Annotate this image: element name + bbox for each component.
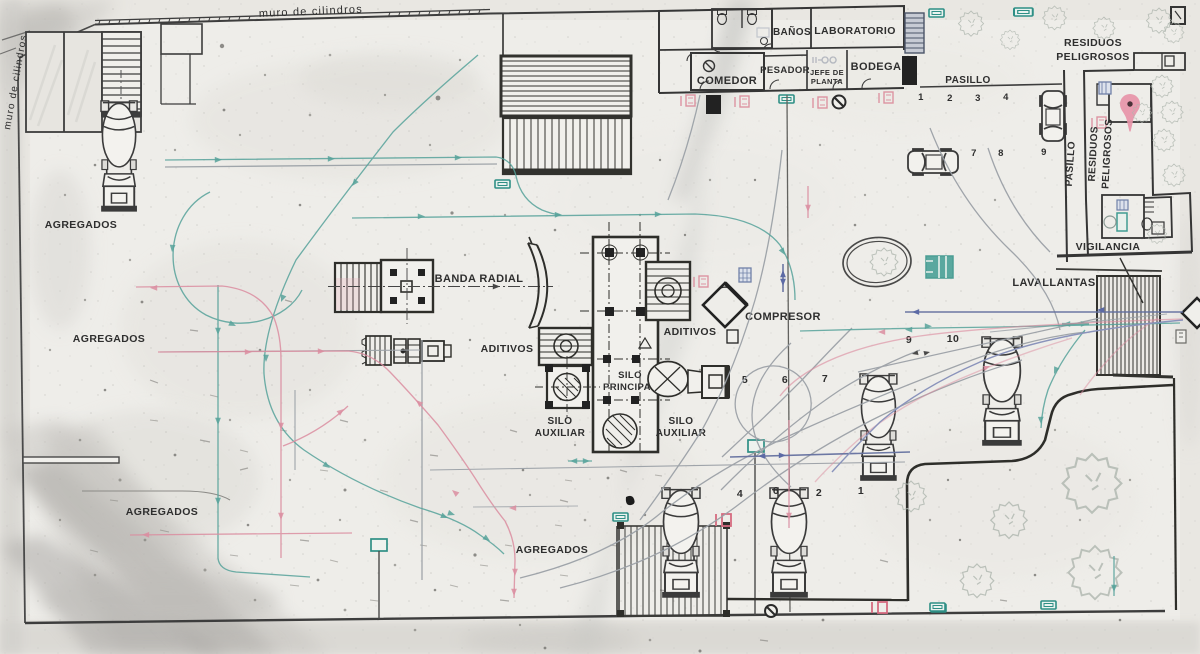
svg-text:4: 4 [737,488,743,500]
svg-text:AGREGADOS: AGREGADOS [45,219,117,231]
svg-text:JEFE DE: JEFE DE [810,68,844,77]
svg-text:PASILLO: PASILLO [945,75,990,86]
svg-text:PLANTA: PLANTA [811,77,843,86]
svg-text:1: 1 [918,92,924,103]
svg-text:AGREGADOS: AGREGADOS [73,333,145,345]
svg-text:PESADOR: PESADOR [760,65,810,76]
svg-text:PELIGROSOS: PELIGROSOS [1056,51,1129,63]
svg-text:AUXILIAR: AUXILIAR [656,428,707,439]
svg-text:LAVALLANTAS: LAVALLANTAS [1012,277,1095,289]
svg-text:COMEDOR: COMEDOR [697,75,757,87]
svg-text:VIGILANCIA: VIGILANCIA [1076,241,1141,253]
svg-text:2: 2 [816,487,822,499]
svg-text:LABORATORIO: LABORATORIO [814,25,896,37]
svg-text:BAÑOS: BAÑOS [773,25,811,38]
svg-text:ADITIVOS: ADITIVOS [664,326,717,338]
svg-text:AGREGADOS: AGREGADOS [126,506,198,518]
svg-text:6: 6 [773,485,779,497]
svg-text:9: 9 [1041,147,1047,158]
svg-text:COMPRESOR: COMPRESOR [745,311,821,323]
svg-text:3: 3 [975,93,981,104]
svg-text:SILO: SILO [669,416,694,427]
svg-text:SILO: SILO [548,416,573,427]
svg-text:8: 8 [998,148,1004,159]
svg-text:AUXILIAR: AUXILIAR [535,428,586,439]
svg-text:ADITIVOS: ADITIVOS [481,343,534,355]
svg-text:1: 1 [858,485,864,497]
svg-text:10: 10 [947,333,959,345]
svg-text:6: 6 [782,374,788,386]
svg-text:9: 9 [906,334,912,346]
svg-text:2: 2 [947,93,953,104]
svg-text:4: 4 [1003,92,1009,103]
svg-text:7: 7 [822,373,828,385]
svg-text:SILO: SILO [618,370,642,381]
svg-text:BODEGA: BODEGA [851,61,902,73]
svg-text:AGREGADOS: AGREGADOS [516,544,588,556]
svg-text:RESIDUOS: RESIDUOS [1064,37,1122,49]
svg-text:7: 7 [971,148,977,159]
svg-text:BANDA RADIAL: BANDA RADIAL [435,273,524,285]
